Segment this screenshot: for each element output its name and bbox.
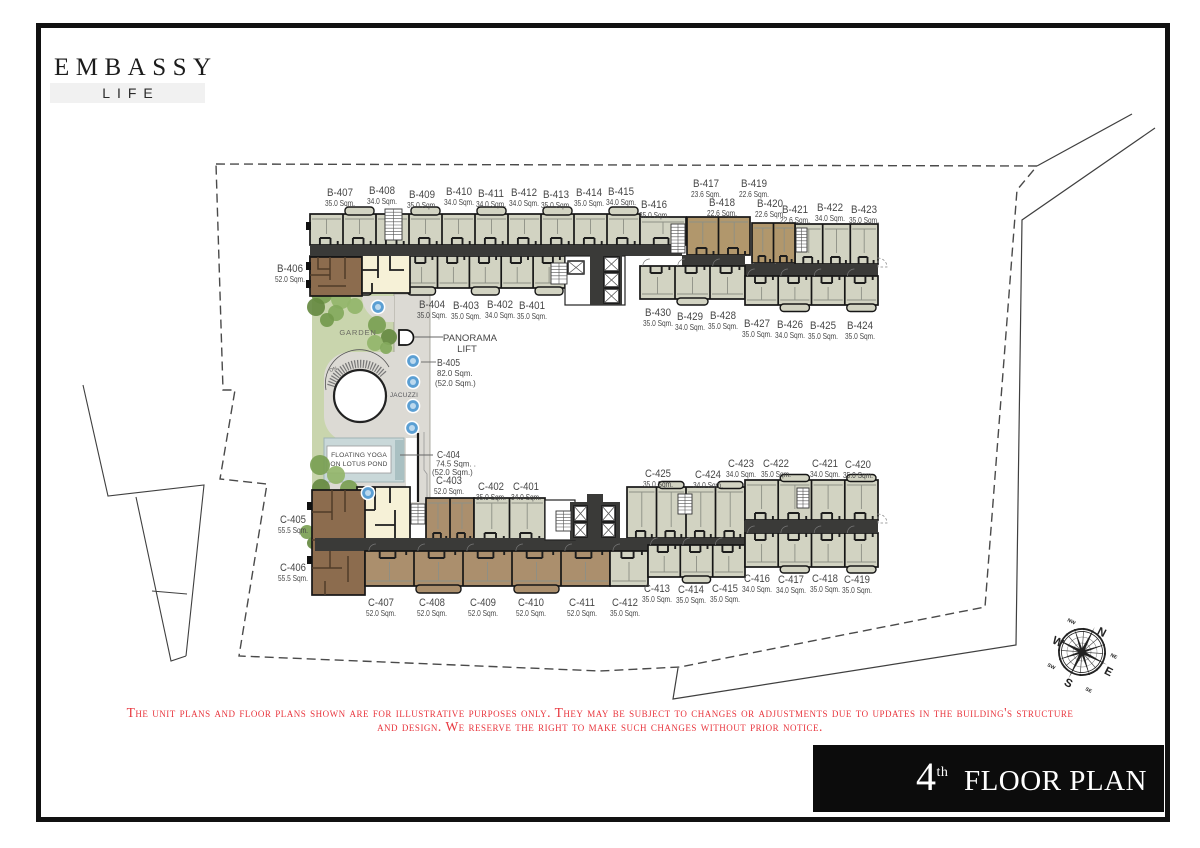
svg-text:35.0 Sqm.: 35.0 Sqm. [451,312,481,321]
svg-text:B-417: B-417 [693,178,719,190]
svg-text:W: W [1050,635,1065,651]
svg-text:C-405: C-405 [280,514,306,526]
svg-text:52.0 Sqm.: 52.0 Sqm. [275,275,305,284]
svg-text:35.0 Sqm.: 35.0 Sqm. [517,312,547,321]
svg-text:82.0 Sqm.: 82.0 Sqm. [437,369,473,378]
svg-text:35.0 Sqm.: 35.0 Sqm. [643,480,673,489]
svg-text:B-430: B-430 [645,307,671,319]
svg-text:B-416: B-416 [641,199,667,211]
svg-text:B-414: B-414 [576,187,602,199]
svg-text:35.0 Sqm.: 35.0 Sqm. [808,332,838,341]
svg-text:35.0 Sqm.: 35.0 Sqm. [710,595,740,604]
svg-text:GARDEN: GARDEN [339,328,376,337]
svg-text:FLOATING YOGA: FLOATING YOGA [331,452,387,459]
svg-text:C-418: C-418 [812,573,838,585]
svg-text:C-413: C-413 [644,583,670,595]
svg-text:35.0 Sqm.: 35.0 Sqm. [843,471,873,480]
svg-text:C-420: C-420 [845,459,871,471]
svg-text:SE: SE [1084,686,1093,695]
svg-text:35.0 Sqm.: 35.0 Sqm. [643,319,673,328]
svg-text:35.0 Sqm.: 35.0 Sqm. [761,470,791,479]
svg-text:35.0 Sqm.: 35.0 Sqm. [849,216,879,225]
svg-text:52.0 Sqm.: 52.0 Sqm. [366,609,396,618]
svg-text:B-421: B-421 [782,204,808,216]
svg-text:B-402: B-402 [487,299,513,311]
svg-text:34.0 Sqm.: 34.0 Sqm. [511,493,541,502]
svg-text:C-411: C-411 [569,597,595,609]
svg-text:B-408: B-408 [369,185,395,197]
svg-text:35.0 Sqm.: 35.0 Sqm. [639,211,669,220]
svg-text:B-404: B-404 [419,299,445,311]
svg-text:B-418: B-418 [709,197,735,209]
svg-text:B-422: B-422 [817,202,843,214]
svg-text:34.0 Sqm.: 34.0 Sqm. [606,198,636,207]
svg-text:C-421: C-421 [812,458,838,470]
svg-text:C-409: C-409 [470,597,496,609]
svg-text:B-424: B-424 [847,320,873,332]
svg-text:B-429: B-429 [677,311,703,323]
svg-text:C-412: C-412 [612,597,638,609]
svg-text:55.5 Sqm.: 55.5 Sqm. [278,526,308,535]
svg-text:C-423: C-423 [728,458,754,470]
svg-text:52.0 Sqm.: 52.0 Sqm. [468,609,498,618]
svg-text:S: S [1062,677,1075,691]
svg-text:35.0 Sqm.: 35.0 Sqm. [574,199,604,208]
svg-text:B-405: B-405 [437,358,460,369]
svg-text:B-412: B-412 [511,187,537,199]
svg-text:B-407: B-407 [327,187,353,199]
svg-text:(52.0 Sqm.): (52.0 Sqm.) [432,468,473,477]
svg-text:34.0 Sqm.: 34.0 Sqm. [367,197,397,206]
svg-text:NW: NW [1066,617,1076,626]
svg-text:35.0 Sqm.: 35.0 Sqm. [541,201,571,210]
svg-text:22.6 Sqm.: 22.6 Sqm. [780,216,810,225]
svg-text:C-408: C-408 [419,597,445,609]
svg-text:C-414: C-414 [678,584,704,596]
svg-text:C-410: C-410 [518,597,544,609]
svg-text:34.0 Sqm.: 34.0 Sqm. [810,470,840,479]
svg-text:34.0 Sqm.: 34.0 Sqm. [509,199,539,208]
svg-text:35.0 Sqm.: 35.0 Sqm. [845,332,875,341]
svg-text:34.0 Sqm.: 34.0 Sqm. [775,331,805,340]
svg-text:34.0 Sqm.: 34.0 Sqm. [476,200,506,209]
svg-text:35.0 Sqm.: 35.0 Sqm. [810,585,840,594]
svg-text:C-419: C-419 [844,574,870,586]
svg-text:52.0 Sqm.: 52.0 Sqm. [434,487,464,496]
svg-text:34.0 Sqm.: 34.0 Sqm. [444,198,474,207]
svg-text:B-423: B-423 [851,204,877,216]
svg-text:34.0 Sqm.: 34.0 Sqm. [485,311,515,320]
svg-text:35.0 Sqm.: 35.0 Sqm. [417,311,447,320]
svg-text:NE: NE [1109,652,1119,661]
svg-text:35.0 Sqm.: 35.0 Sqm. [610,609,640,618]
svg-text:22.6 Sqm.: 22.6 Sqm. [707,209,737,218]
svg-text:C-416: C-416 [744,573,770,585]
svg-text:35.0 Sqm.: 35.0 Sqm. [407,201,437,210]
svg-text:B-411: B-411 [478,188,504,200]
svg-text:C-407: C-407 [368,597,394,609]
svg-text:34.0 Sqm.: 34.0 Sqm. [742,585,772,594]
svg-text:B-410: B-410 [446,186,472,198]
svg-text:34.0 Sqm.: 34.0 Sqm. [693,481,723,490]
svg-text:E: E [1102,665,1115,679]
svg-text:C-417: C-417 [778,574,804,586]
svg-text:B-401: B-401 [519,300,545,312]
svg-text:B-409: B-409 [409,189,435,201]
svg-text:B-419: B-419 [741,178,767,190]
svg-text:PANORAMA: PANORAMA [443,333,498,344]
svg-text:B-413: B-413 [543,189,569,201]
svg-text:35.0 Sqm.: 35.0 Sqm. [476,493,506,502]
svg-text:35.0 Sqm.: 35.0 Sqm. [842,586,872,595]
svg-text:B-415: B-415 [608,186,634,198]
svg-text:35.0 Sqm.: 35.0 Sqm. [325,199,355,208]
svg-text:34.0 Sqm.: 34.0 Sqm. [776,586,806,595]
svg-text:B-403: B-403 [453,300,479,312]
svg-text:C-401: C-401 [513,481,539,493]
svg-text:C-415: C-415 [712,583,738,595]
svg-text:C-402: C-402 [478,481,504,493]
svg-text:35.0 Sqm.: 35.0 Sqm. [642,595,672,604]
svg-text:52.0 Sqm.: 52.0 Sqm. [567,609,597,618]
svg-text:B-425: B-425 [810,320,836,332]
svg-text:34.0 Sqm.: 34.0 Sqm. [815,214,845,223]
svg-text:35.0 Sqm.: 35.0 Sqm. [708,322,738,331]
svg-text:34.0 Sqm.: 34.0 Sqm. [675,323,705,332]
svg-text:B-406: B-406 [277,263,303,275]
svg-text:C-406: C-406 [280,562,306,574]
svg-text:35.0 Sqm.: 35.0 Sqm. [742,330,772,339]
svg-text:55.5 Sqm.: 55.5 Sqm. [278,574,308,583]
svg-text:52.0 Sqm.: 52.0 Sqm. [516,609,546,618]
svg-text:C-424: C-424 [695,469,721,481]
svg-text:(52.0 Sqm.): (52.0 Sqm.) [435,379,476,388]
svg-text:LIFT: LIFT [457,344,477,355]
svg-text:JACUZZI: JACUZZI [390,392,418,399]
svg-text:B-420: B-420 [757,198,783,210]
svg-text:B-426: B-426 [777,319,803,331]
svg-text:C-422: C-422 [763,458,789,470]
svg-text:B-428: B-428 [710,310,736,322]
svg-text:C-425: C-425 [645,468,671,480]
svg-text:34.0 Sqm.: 34.0 Sqm. [726,470,756,479]
svg-text:52.0 Sqm.: 52.0 Sqm. [417,609,447,618]
svg-text:SW: SW [1046,662,1056,671]
svg-text:35.0 Sqm.: 35.0 Sqm. [676,596,706,605]
svg-text:B-427: B-427 [744,318,770,330]
